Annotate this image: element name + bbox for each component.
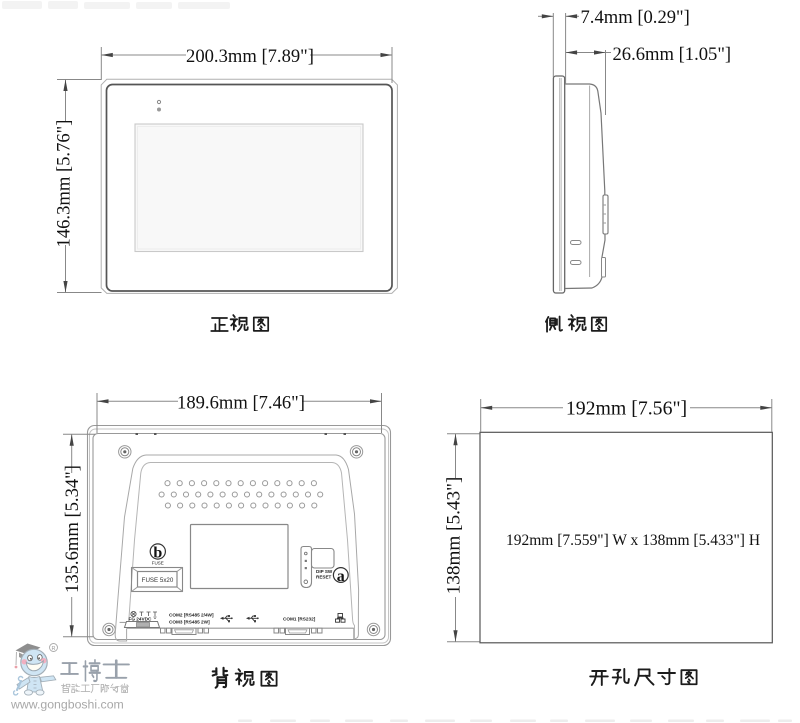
- svg-text:192mm [7.559"] W x 138mm [5.43: 192mm [7.559"] W x 138mm [5.433"] H: [506, 532, 760, 549]
- svg-text:COM2 [RS485 2/4W]: COM2 [RS485 2/4W]: [169, 612, 214, 617]
- svg-text:FUSE: FUSE: [152, 561, 164, 566]
- svg-text:7.4mm [0.29"]: 7.4mm [0.29"]: [581, 7, 690, 28]
- svg-text:COM3 [RS485 2W]: COM3 [RS485 2W]: [169, 620, 210, 625]
- svg-text:192mm [7.56"]: 192mm [7.56"]: [566, 398, 687, 420]
- svg-text:146.3mm [5.76"]: 146.3mm [5.76"]: [54, 120, 75, 248]
- svg-text:b: b: [153, 545, 162, 562]
- svg-text:FG 24VDC: FG 24VDC: [129, 617, 153, 622]
- svg-text:138mm [5.43"]: 138mm [5.43"]: [444, 477, 465, 595]
- svg-text:200.3mm [7.89"]: 200.3mm [7.89"]: [186, 46, 314, 67]
- svg-text:DIP SW: DIP SW: [316, 569, 333, 574]
- svg-text:189.6mm [7.46"]: 189.6mm [7.46"]: [177, 393, 305, 414]
- svg-text:R: R: [52, 646, 56, 652]
- svg-text:135.6mm [5.34"]: 135.6mm [5.34"]: [62, 465, 83, 593]
- svg-text:www.gongboshi.com: www.gongboshi.com: [10, 698, 124, 712]
- svg-text:COM1 [RS232]: COM1 [RS232]: [283, 617, 316, 622]
- svg-text:RESET: RESET: [316, 575, 332, 580]
- svg-text:a: a: [337, 568, 345, 585]
- svg-text:26.6mm [1.05"]: 26.6mm [1.05"]: [613, 44, 732, 65]
- svg-text:FUSE 5x20: FUSE 5x20: [142, 577, 174, 584]
